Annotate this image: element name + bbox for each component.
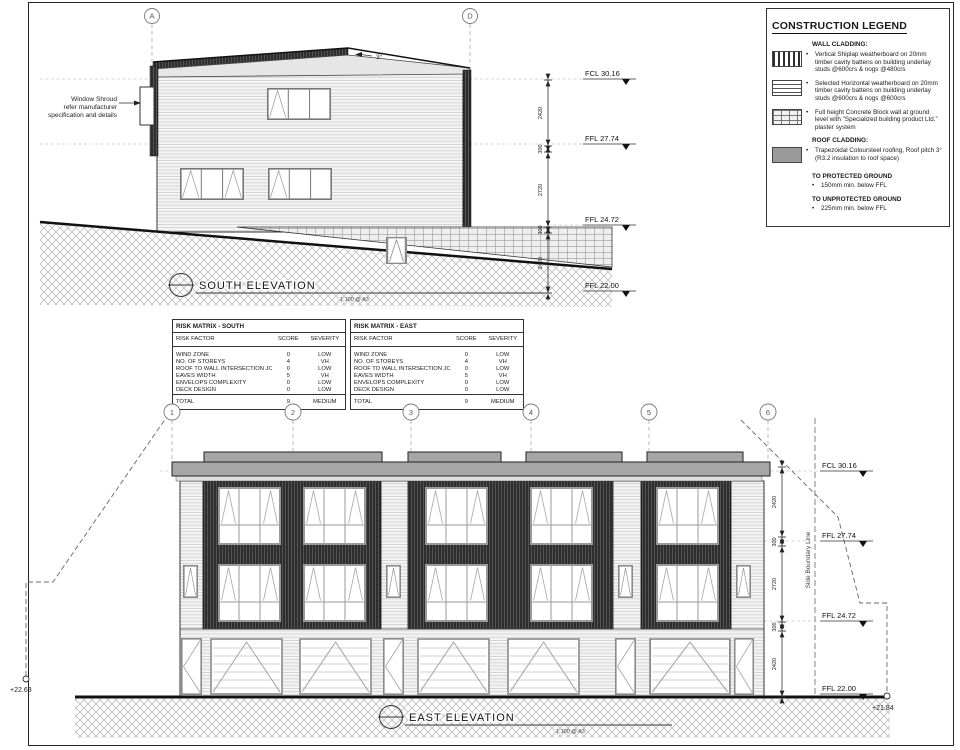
table-header-row: RISK FACTOR SCORE SEVERITY: [351, 333, 523, 347]
dim-label: 2720: [538, 184, 544, 196]
window: [657, 565, 718, 621]
spot-level-marker: [884, 693, 890, 699]
window: [619, 566, 632, 597]
garage-door: [300, 639, 371, 694]
legend-item: Selected Horizontal weatherboard on 20mm…: [772, 80, 944, 103]
right-shiplap-band: [463, 70, 471, 232]
legend-item: Full height Concrete Block wall at groun…: [772, 109, 944, 132]
window: [181, 169, 243, 199]
spot-level-marker: [23, 676, 29, 682]
construction-legend: CONSTRUCTION LEGEND WALL CLADDING: Verti…: [766, 8, 950, 227]
dim-label: 300: [538, 225, 544, 234]
grid-marker-label: D: [467, 12, 473, 21]
legend-item-text: Trapezoidal Coloursteel roofing, Roof pi…: [815, 147, 943, 162]
legend-item-text: Full height Concrete Block wall at groun…: [815, 109, 943, 132]
pitch-arrow-line: [361, 55, 372, 57]
grid-marker-label: 1: [170, 408, 174, 417]
window: [657, 488, 718, 544]
bullet-icon: [806, 109, 815, 117]
dim-label: 2420: [772, 496, 778, 508]
level-flag: FCL 30.16 FFL 27.74 FFL 24.72 FFL 22.00: [820, 461, 873, 700]
ground-notes: TO PROTECTED GROUND 150mm min. below FFL…: [812, 173, 944, 212]
bullet-icon: [806, 80, 815, 88]
legend-item: 150mm min. below FFL: [812, 182, 944, 190]
table-row: ENVELOPS COMPLEXITY0LOW: [173, 380, 345, 387]
dim-label: 300: [772, 622, 778, 631]
dim-label: 2420: [538, 257, 544, 269]
roof-cladding-heading: ROOF CLADDING:: [812, 137, 944, 144]
recession-plane-line: [26, 415, 168, 676]
south-elevation-drawing: Window Shroud refer manufacturer specifi…: [0, 0, 660, 335]
dim-label: 300: [538, 144, 544, 153]
entry-door: [182, 639, 201, 694]
window: [531, 488, 592, 544]
window: [426, 565, 487, 621]
grid-marker-label: 6: [766, 408, 770, 417]
level-label: FFL 22.00: [822, 684, 856, 693]
roof-cladding-swatch: [772, 147, 802, 163]
window: [219, 565, 280, 621]
wall-cladding-heading: WALL CLADDING:: [812, 41, 944, 48]
grid-marker-label: 4: [529, 408, 533, 417]
window: [304, 565, 365, 621]
legend-item-text: 150mm min. below FFL: [821, 182, 887, 190]
dim-label: 2420: [772, 658, 778, 670]
roof-parapet-step: [408, 452, 501, 462]
legend-item-text: 225mm min. below FFL: [821, 205, 887, 213]
table-row: DECK DESIGN0LOW: [173, 387, 345, 395]
window: [737, 566, 750, 597]
window-shroud: [140, 87, 154, 125]
level-label: FFL 24.72: [822, 611, 856, 620]
east-elevation-title: EAST ELEVATION: [409, 712, 515, 724]
level-label: FFL 27.74: [822, 531, 856, 540]
spot-level-label: +22.63: [10, 687, 32, 694]
table-row: WIND ZONE0LOW: [351, 347, 523, 360]
level-label: FCL 30.16: [822, 461, 857, 470]
window: [269, 169, 331, 199]
grid-markers: 1 2 3 4 5 6: [164, 404, 776, 420]
bullet-icon: [812, 182, 821, 190]
table-title-row: RISK MATRIX - EAST: [351, 320, 523, 333]
horizontal-weatherboard-swatch: [772, 80, 802, 96]
grid-marker-label: 5: [647, 408, 651, 417]
table-row: EAVES WIDTH5VH: [173, 373, 345, 380]
scale-label: 1:100 @ A3: [340, 297, 369, 303]
entry-door: [384, 639, 403, 694]
table-row: ENVELOPS COMPLEXITY0LOW: [351, 380, 523, 387]
level-label: FFL 27.74: [585, 134, 619, 143]
annotation-line: Window Shroud: [71, 96, 117, 103]
table-title-row: RISK MATRIX - SOUTH: [173, 320, 345, 333]
unprotected-ground-heading: TO UNPROTECTED GROUND: [812, 196, 944, 203]
roof-parapet-step: [526, 452, 622, 462]
garage-door: [650, 639, 730, 694]
garage-door: [211, 639, 282, 694]
table-row: ROOF TO WALL INTERSECTION JOINT0LOW: [351, 366, 523, 373]
level-label: FCL 30.16: [585, 69, 620, 78]
scale-label: 1:100 @ A3: [556, 729, 585, 735]
roof-parapet-step: [647, 452, 743, 462]
dim-label: 2720: [772, 578, 778, 590]
window: [304, 488, 365, 544]
level-label: FFL 22.00: [585, 281, 619, 290]
roof-band: [172, 462, 770, 476]
annotation-line: specification and details: [48, 112, 118, 119]
concrete-block-swatch: [772, 109, 802, 125]
window: [219, 488, 280, 544]
dim-label: 2420: [538, 107, 544, 119]
legend-item-text: Selected Horizontal weatherboard on 20mm…: [815, 80, 943, 103]
roof-pitch-label: 3°: [376, 53, 383, 61]
protected-ground-heading: TO PROTECTED GROUND: [812, 173, 944, 180]
garage-door: [418, 639, 489, 694]
dim-label: 300: [772, 537, 778, 546]
level-label: FFL 24.72: [585, 215, 619, 224]
legend-item-text: Vertical Shiplap weatherboard on 20mm ti…: [815, 51, 943, 74]
table-row: EAVES WIDTH5VH: [351, 373, 523, 380]
legend-item: Vertical Shiplap weatherboard on 20mm ti…: [772, 51, 944, 74]
legend-item: 225mm min. below FFL: [812, 205, 944, 213]
south-elevation-title: SOUTH ELEVATION: [199, 280, 316, 292]
bullet-icon: [806, 147, 815, 155]
table-row: NO. OF STOREYS4VH: [351, 359, 523, 366]
grid-marker-label: A: [149, 12, 154, 21]
window: [184, 566, 197, 597]
table-row: DECK DESIGN0LOW: [351, 387, 523, 395]
table-row: ROOF TO WALL INTERSECTION JOINT0LOW: [173, 366, 345, 373]
boundary-label: Side Boundary Line: [805, 531, 812, 588]
legend-title: CONSTRUCTION LEGEND: [772, 20, 907, 34]
window: [426, 488, 487, 544]
bullet-icon: [806, 51, 815, 59]
east-elevation-drawing: +22.63 Side Boundary Line +21.84 1 2 3 4…: [0, 395, 960, 750]
grid-marker-label: 3: [409, 408, 413, 417]
legend-item: Trapezoidal Coloursteel roofing, Roof pi…: [772, 147, 944, 163]
bullet-icon: [812, 205, 821, 213]
annotation-line: refer manufacturer: [64, 104, 118, 111]
window: [531, 565, 592, 621]
spot-level-label: +21.84: [872, 705, 894, 712]
table-header-row: RISK FACTOR SCORE SEVERITY: [173, 333, 345, 347]
vertical-shiplap-swatch: [772, 51, 802, 67]
roof-parapet-step: [204, 452, 382, 462]
table-row: NO. OF STOREYS4VH: [173, 359, 345, 366]
grid-marker-label: 2: [291, 408, 295, 417]
window: [387, 566, 400, 597]
garage-door: [508, 639, 579, 694]
roof-fascia: [176, 476, 762, 481]
entry-door: [616, 639, 635, 694]
window: [387, 238, 406, 264]
window: [268, 89, 330, 119]
table-row: WIND ZONE0LOW: [173, 347, 345, 360]
entry-door: [735, 639, 753, 694]
